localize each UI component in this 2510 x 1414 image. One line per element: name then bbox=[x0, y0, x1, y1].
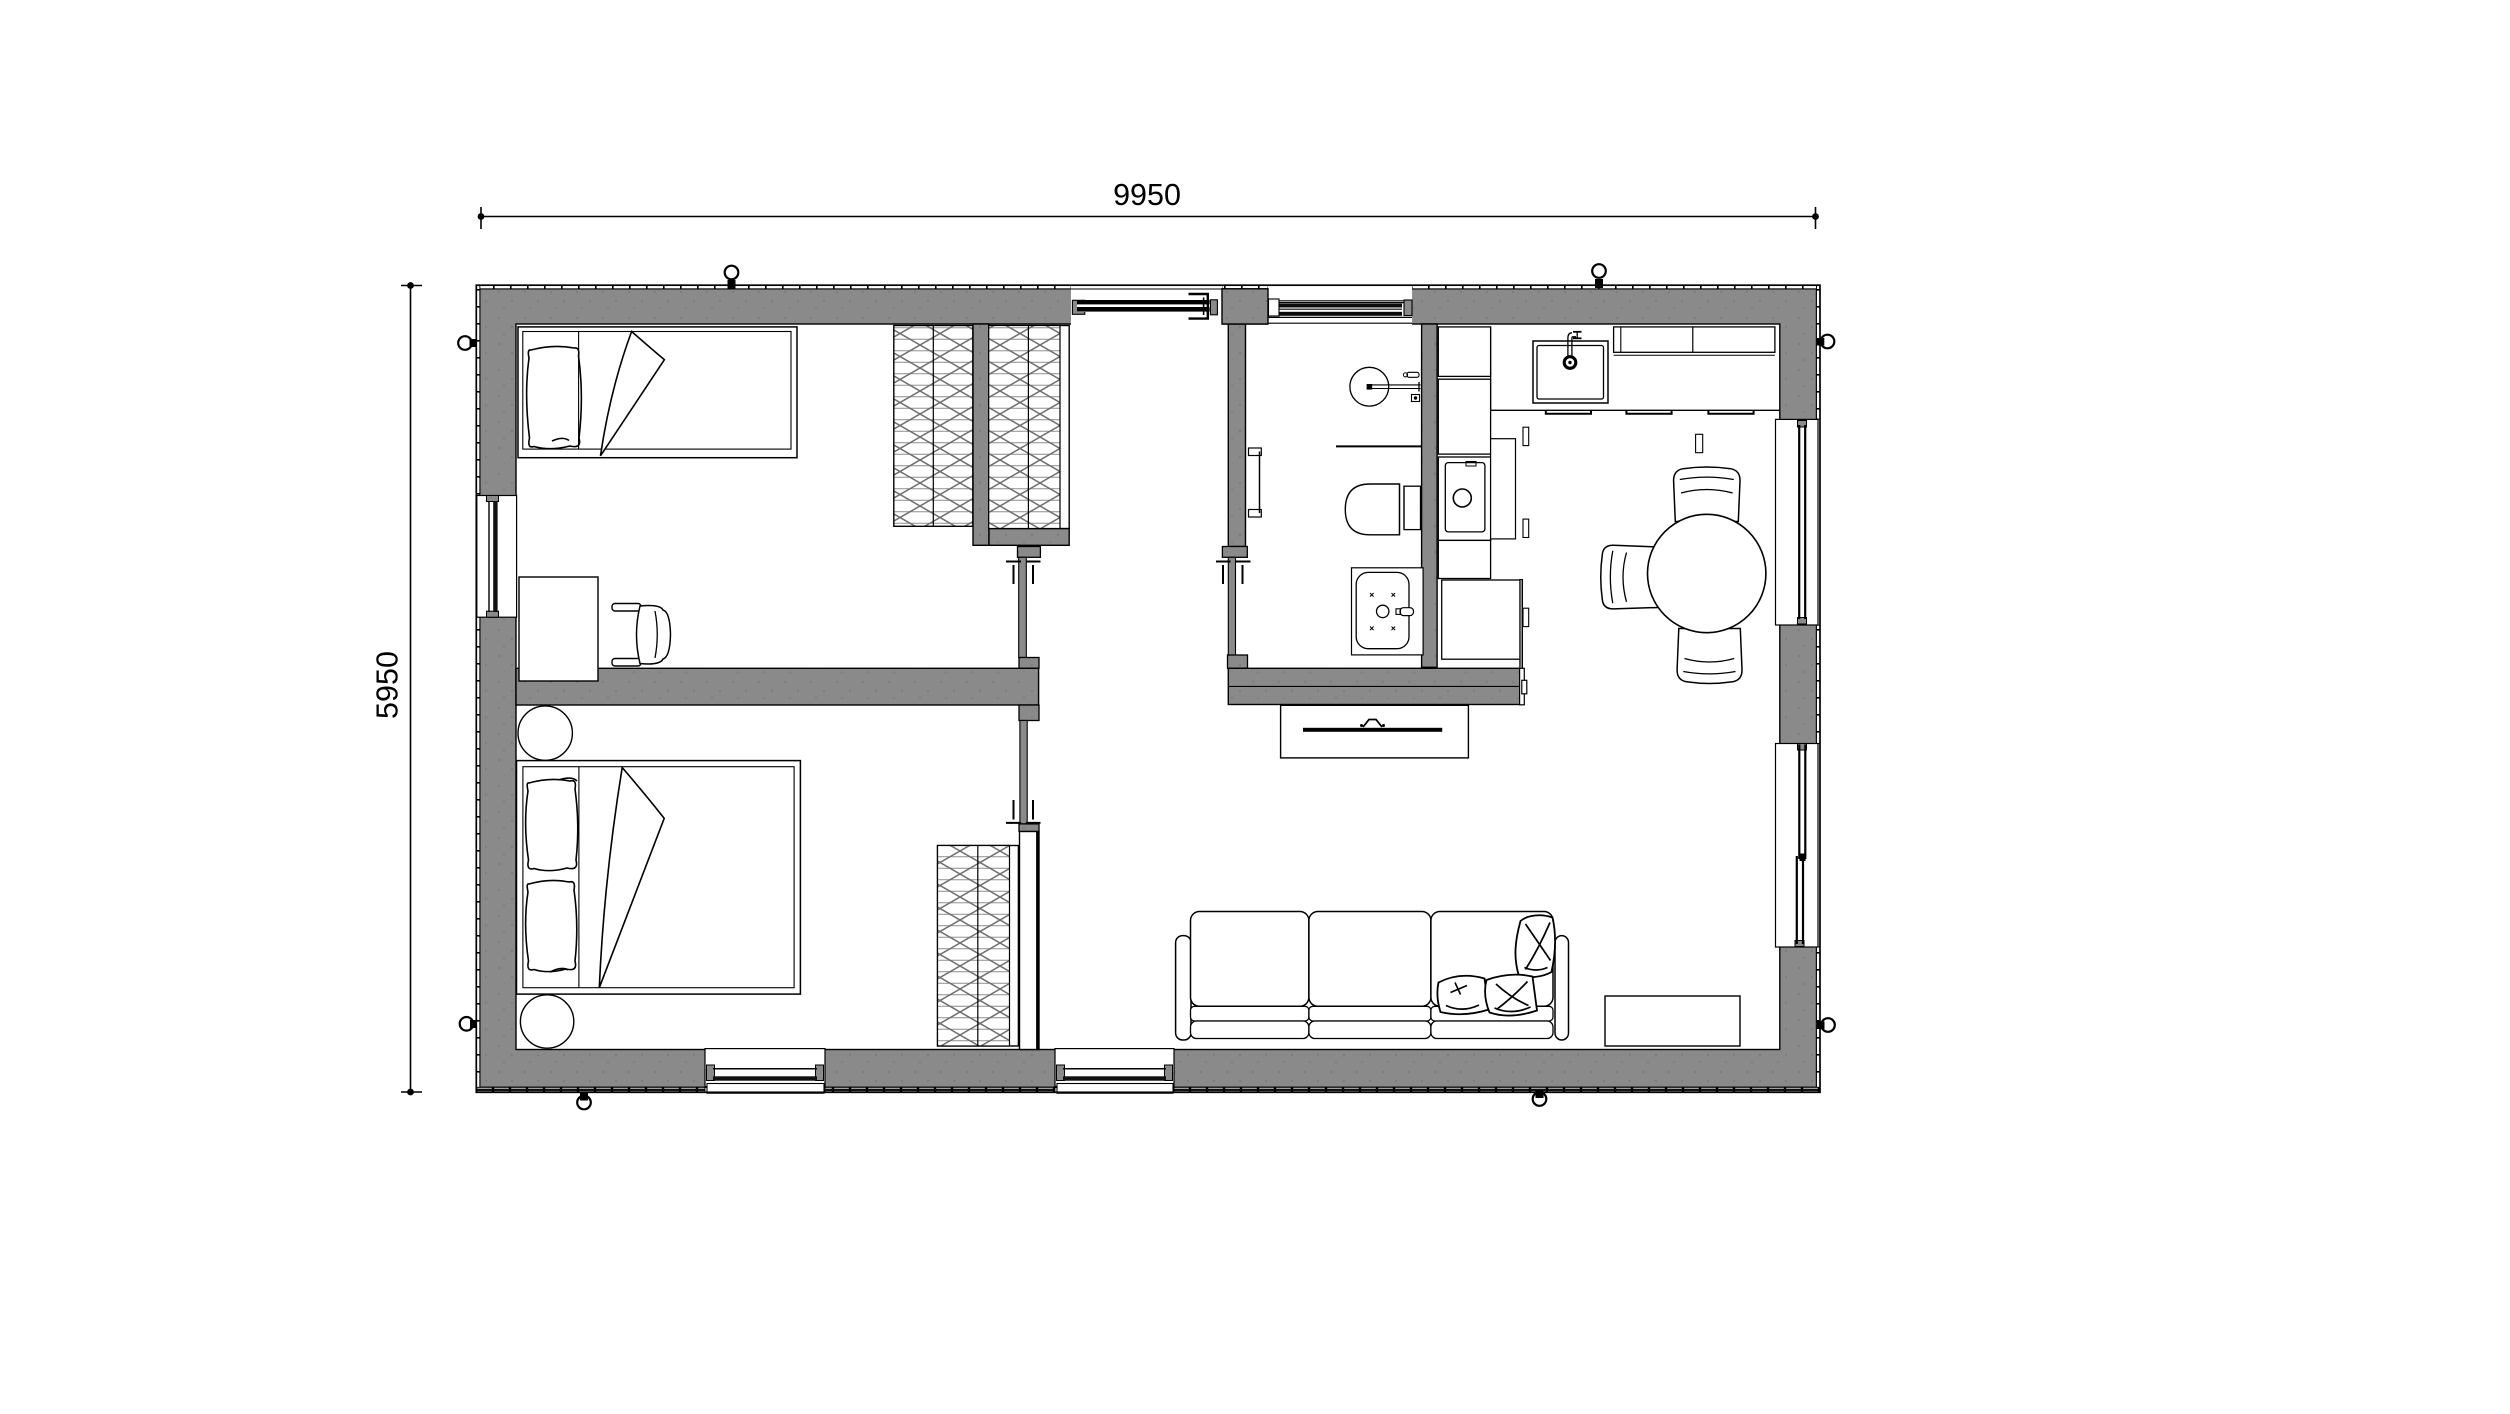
svg-text:5950: 5950 bbox=[371, 651, 405, 719]
svg-text:9950: 9950 bbox=[1113, 178, 1181, 212]
